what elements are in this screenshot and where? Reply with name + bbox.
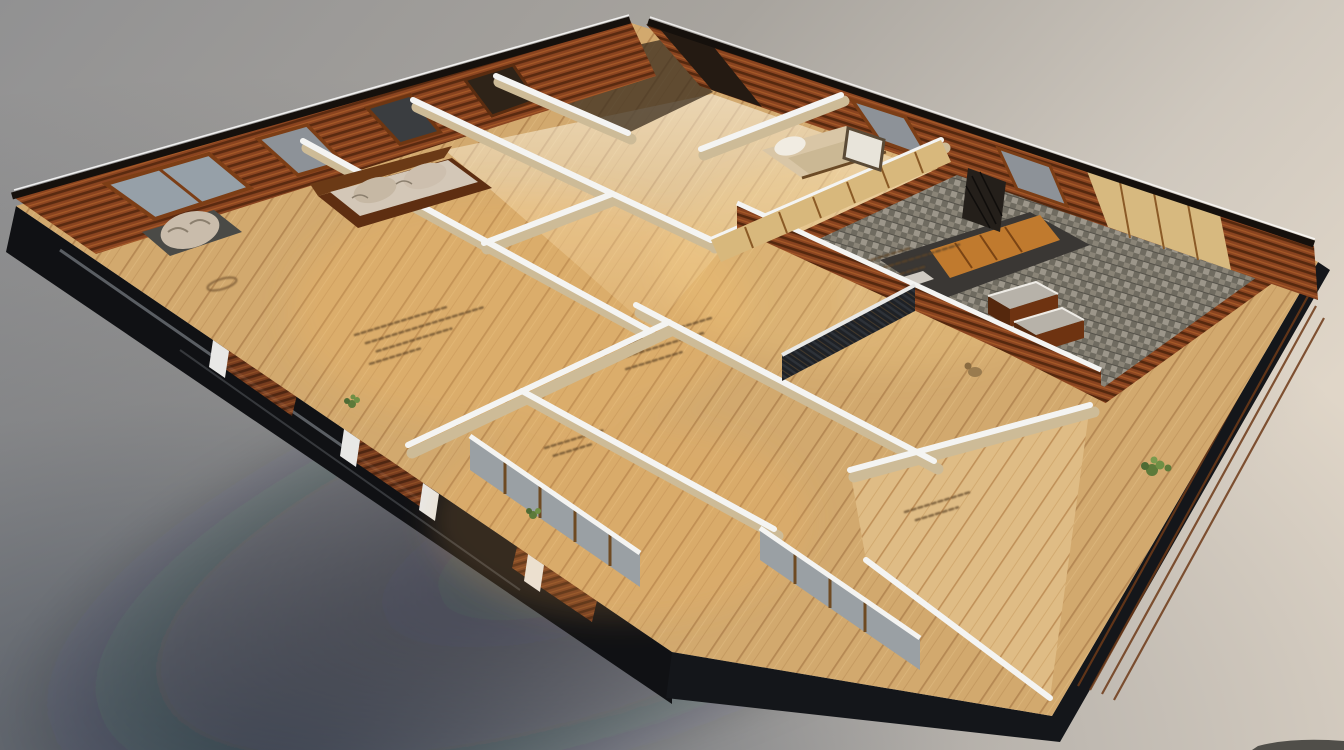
floorplan-render: Photorealistic 3D cutaway floor-plan ren… (0, 0, 1344, 750)
figurine-head (965, 363, 972, 370)
render-canvas: Photorealistic 3D cutaway floor-plan ren… (0, 0, 1344, 750)
